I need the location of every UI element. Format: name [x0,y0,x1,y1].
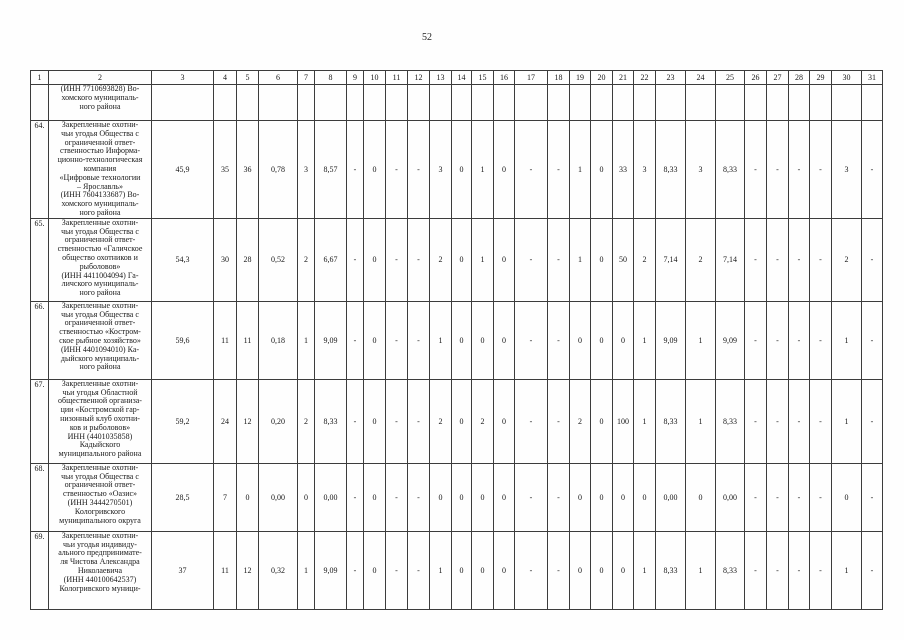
value-cell: - [548,218,570,301]
value-cell: 0 [832,463,862,531]
value-cell: 0 [613,301,634,379]
value-cell: - [347,463,364,531]
value-cell: 3 [298,121,315,219]
value-cell: - [548,463,570,531]
value-cell: - [810,121,832,219]
value-cell: 0 [591,531,613,609]
column-header-17: 17 [515,71,548,85]
value-cell: 1 [430,531,452,609]
value-cell: - [386,463,408,531]
value-cell: 0,20 [259,379,298,463]
value-cell: 9,09 [315,301,347,379]
column-header-26: 26 [745,71,767,85]
row-number-cell: 64. [31,121,49,219]
value-cell: 0,00 [259,463,298,531]
value-cell [570,85,591,121]
value-cell: 2 [298,218,315,301]
value-cell: - [810,301,832,379]
value-cell: 7 [214,463,237,531]
value-cell: 45,9 [152,121,214,219]
value-cell: - [515,463,548,531]
value-cell [656,85,686,121]
column-header-1: 1 [31,71,49,85]
value-cell: - [789,301,810,379]
value-cell: - [789,379,810,463]
value-cell: 0 [591,218,613,301]
column-header-11: 11 [386,71,408,85]
value-cell: - [515,531,548,609]
value-cell: - [810,531,832,609]
value-cell: 0 [591,379,613,463]
table-row: 64.Закрепленные охотни- чьи угодья Общес… [31,121,883,219]
value-cell [408,85,430,121]
column-header-30: 30 [832,71,862,85]
value-cell [214,85,237,121]
column-header-7: 7 [298,71,315,85]
value-cell: 0 [494,301,515,379]
row-number-cell: 69. [31,531,49,609]
value-cell [472,85,494,121]
value-cell: - [745,121,767,219]
value-cell: 3 [832,121,862,219]
value-cell: 1 [686,531,716,609]
value-cell: 11 [214,301,237,379]
value-cell [613,85,634,121]
row-number-cell: 65. [31,218,49,301]
value-cell [767,85,789,121]
value-cell: - [515,218,548,301]
value-cell: - [548,121,570,219]
column-header-16: 16 [494,71,515,85]
value-cell: 2 [298,379,315,463]
value-cell: - [789,121,810,219]
value-cell: 0 [430,463,452,531]
value-cell [745,85,767,121]
value-cell: 2 [686,218,716,301]
value-cell [789,85,810,121]
value-cell: 0 [591,301,613,379]
value-cell: 8,33 [315,379,347,463]
value-cell: 0 [364,301,386,379]
value-cell: 1 [298,301,315,379]
value-cell: 3 [634,121,656,219]
value-cell: 0 [452,301,472,379]
value-cell: - [862,301,883,379]
column-header-27: 27 [767,71,789,85]
value-cell: - [745,531,767,609]
value-cell: - [386,121,408,219]
hunting-ground-name-cell: Закрепленные охотни- чьи угодья Общества… [49,463,152,531]
value-cell: 1 [832,301,862,379]
row-number-cell [31,85,49,121]
value-cell [515,85,548,121]
value-cell: - [386,379,408,463]
value-cell: - [347,218,364,301]
value-cell: 0 [634,463,656,531]
value-cell: 30 [214,218,237,301]
value-cell: 1 [686,379,716,463]
value-cell [862,85,883,121]
value-cell: - [745,463,767,531]
value-cell: 0 [364,218,386,301]
column-header-4: 4 [214,71,237,85]
value-cell: 8,33 [716,121,745,219]
value-cell: - [548,301,570,379]
value-cell: - [408,531,430,609]
value-cell: 1 [570,218,591,301]
table-row: 68.Закрепленные охотни- чьи угодья Общес… [31,463,883,531]
value-cell: 0,00 [716,463,745,531]
row-number-cell: 68. [31,463,49,531]
value-cell: - [347,379,364,463]
value-cell: 2 [472,379,494,463]
table-row: 69.Закрепленные охотни- чьи угодья индив… [31,531,883,609]
value-cell: - [810,379,832,463]
value-cell: - [789,531,810,609]
value-cell: 0 [364,379,386,463]
value-cell [494,85,515,121]
value-cell: 8,33 [716,531,745,609]
value-cell: - [862,218,883,301]
value-cell: 59,6 [152,301,214,379]
column-header-8: 8 [315,71,347,85]
value-cell: 2 [832,218,862,301]
value-cell: 1 [570,121,591,219]
value-cell: 2 [634,218,656,301]
column-header-29: 29 [810,71,832,85]
value-cell: - [767,379,789,463]
value-cell: 0 [452,121,472,219]
value-cell: 0 [570,301,591,379]
document-page: 52 1234567891011121314151617181920212223… [0,0,904,640]
value-cell: 0 [686,463,716,531]
table-row: 65.Закрепленные охотни- чьи угодья Общес… [31,218,883,301]
value-cell: 2 [430,218,452,301]
value-cell: - [862,531,883,609]
table-row: 67.Закрепленные охотни- чьи угодья Облас… [31,379,883,463]
row-number-cell: 66. [31,301,49,379]
column-header-28: 28 [789,71,810,85]
value-cell: 0 [452,463,472,531]
value-cell: 35 [214,121,237,219]
value-cell: 0,18 [259,301,298,379]
value-cell: 28,5 [152,463,214,531]
value-cell: 1 [472,121,494,219]
value-cell: 0 [494,463,515,531]
value-cell: 2 [430,379,452,463]
column-header-2: 2 [49,71,152,85]
value-cell: - [386,301,408,379]
column-header-23: 23 [656,71,686,85]
column-header-22: 22 [634,71,656,85]
value-cell: 0 [494,218,515,301]
value-cell: 0 [452,379,472,463]
value-cell: 54,3 [152,218,214,301]
value-cell [152,85,214,121]
value-cell [810,85,832,121]
column-header-9: 9 [347,71,364,85]
value-cell: - [408,301,430,379]
value-cell: 1 [634,379,656,463]
value-cell: 1 [832,379,862,463]
column-header-10: 10 [364,71,386,85]
value-cell [315,85,347,121]
value-cell: 24 [214,379,237,463]
value-cell [548,85,570,121]
value-cell: 12 [237,379,259,463]
hunting-ground-name-cell: Закрепленные охотни- чьи угодья индивиду… [49,531,152,609]
value-cell: 50 [613,218,634,301]
value-cell: 0 [298,463,315,531]
value-cell: - [515,121,548,219]
column-header-row: 1234567891011121314151617181920212223242… [31,71,883,85]
column-header-25: 25 [716,71,745,85]
value-cell: - [347,301,364,379]
value-cell: - [408,218,430,301]
value-cell [298,85,315,121]
value-cell: 1 [472,218,494,301]
table-row: 66.Закрепленные охотни- чьи угодья Общес… [31,301,883,379]
value-cell: 0 [591,121,613,219]
value-cell: - [386,531,408,609]
value-cell: 37 [152,531,214,609]
value-cell: 9,09 [315,531,347,609]
page-number: 52 [422,32,432,43]
value-cell: 0 [570,531,591,609]
value-cell: - [789,218,810,301]
value-cell: 3 [686,121,716,219]
value-cell: 0 [494,531,515,609]
value-cell: 1 [634,301,656,379]
value-cell: 3 [430,121,452,219]
value-cell [452,85,472,121]
value-cell: 1 [430,301,452,379]
value-cell: - [515,379,548,463]
value-cell [386,85,408,121]
value-cell: 9,09 [716,301,745,379]
column-header-19: 19 [570,71,591,85]
value-cell: - [767,121,789,219]
value-cell: - [515,301,548,379]
column-header-3: 3 [152,71,214,85]
value-cell [832,85,862,121]
value-cell: 0 [570,463,591,531]
value-cell: 0 [472,463,494,531]
value-cell: - [862,121,883,219]
value-cell: 0 [364,531,386,609]
value-cell: 0,32 [259,531,298,609]
value-cell: 1 [634,531,656,609]
column-header-21: 21 [613,71,634,85]
value-cell: 59,2 [152,379,214,463]
value-cell: - [408,121,430,219]
column-header-13: 13 [430,71,452,85]
value-cell: 8,33 [656,379,686,463]
column-header-24: 24 [686,71,716,85]
value-cell: 33 [613,121,634,219]
column-header-31: 31 [862,71,883,85]
value-cell: 0,00 [656,463,686,531]
value-cell: 8,33 [656,121,686,219]
value-cell: - [386,218,408,301]
value-cell: 9,09 [656,301,686,379]
value-cell: 7,14 [716,218,745,301]
value-cell: 0 [494,121,515,219]
value-cell: 0 [591,463,613,531]
value-cell: 0 [364,463,386,531]
hunting-ground-name-cell: (ИНН 7710693828) Во- хомского муниципаль… [49,85,152,121]
value-cell: 0 [237,463,259,531]
value-cell: - [548,379,570,463]
value-cell: - [548,531,570,609]
value-cell: - [745,301,767,379]
value-cell [259,85,298,121]
value-cell: - [810,218,832,301]
value-cell: - [767,531,789,609]
hunting-ground-name-cell: Закрепленные охотни- чьи угодья Общества… [49,121,152,219]
value-cell: - [745,379,767,463]
value-cell: - [767,463,789,531]
value-cell: 100 [613,379,634,463]
value-cell: 6,67 [315,218,347,301]
value-cell: - [408,379,430,463]
column-header-18: 18 [548,71,570,85]
value-cell: 11 [214,531,237,609]
value-cell [634,85,656,121]
value-cell: 0 [494,379,515,463]
value-cell: 11 [237,301,259,379]
value-cell: 0 [452,218,472,301]
value-cell: 0,78 [259,121,298,219]
value-cell [591,85,613,121]
value-cell: - [408,463,430,531]
hunting-grounds-table: 1234567891011121314151617181920212223242… [30,70,883,610]
value-cell: - [810,463,832,531]
column-header-15: 15 [472,71,494,85]
value-cell: 0,00 [315,463,347,531]
value-cell: - [767,218,789,301]
value-cell: 36 [237,121,259,219]
column-header-14: 14 [452,71,472,85]
value-cell: 1 [686,301,716,379]
value-cell: 0 [472,301,494,379]
value-cell: 0 [452,531,472,609]
value-cell: - [862,379,883,463]
value-cell: 1 [832,531,862,609]
value-cell: - [347,531,364,609]
value-cell [430,85,452,121]
value-cell: 0 [472,531,494,609]
table-row: (ИНН 7710693828) Во- хомского муниципаль… [31,85,883,121]
hunting-ground-name-cell: Закрепленные охотни- чьи угодья Общества… [49,218,152,301]
column-header-12: 12 [408,71,430,85]
value-cell [364,85,386,121]
value-cell: 12 [237,531,259,609]
value-cell: 0 [364,121,386,219]
value-cell: 28 [237,218,259,301]
value-cell: - [862,463,883,531]
value-cell: 7,14 [656,218,686,301]
column-header-5: 5 [237,71,259,85]
value-cell: - [767,301,789,379]
value-cell: 0 [613,531,634,609]
value-cell: 8,57 [315,121,347,219]
value-cell: - [745,218,767,301]
value-cell [237,85,259,121]
value-cell: 2 [570,379,591,463]
value-cell: 8,33 [716,379,745,463]
value-cell [716,85,745,121]
row-number-cell: 67. [31,379,49,463]
column-header-20: 20 [591,71,613,85]
hunting-ground-name-cell: Закрепленные охотни- чьи угодья Общества… [49,301,152,379]
value-cell: 0,52 [259,218,298,301]
value-cell [686,85,716,121]
value-cell: - [789,463,810,531]
value-cell: 1 [298,531,315,609]
value-cell [347,85,364,121]
hunting-ground-name-cell: Закрепленные охотни- чьи угодья Областно… [49,379,152,463]
value-cell: 0 [613,463,634,531]
value-cell: - [347,121,364,219]
value-cell: 8,33 [656,531,686,609]
column-header-6: 6 [259,71,298,85]
